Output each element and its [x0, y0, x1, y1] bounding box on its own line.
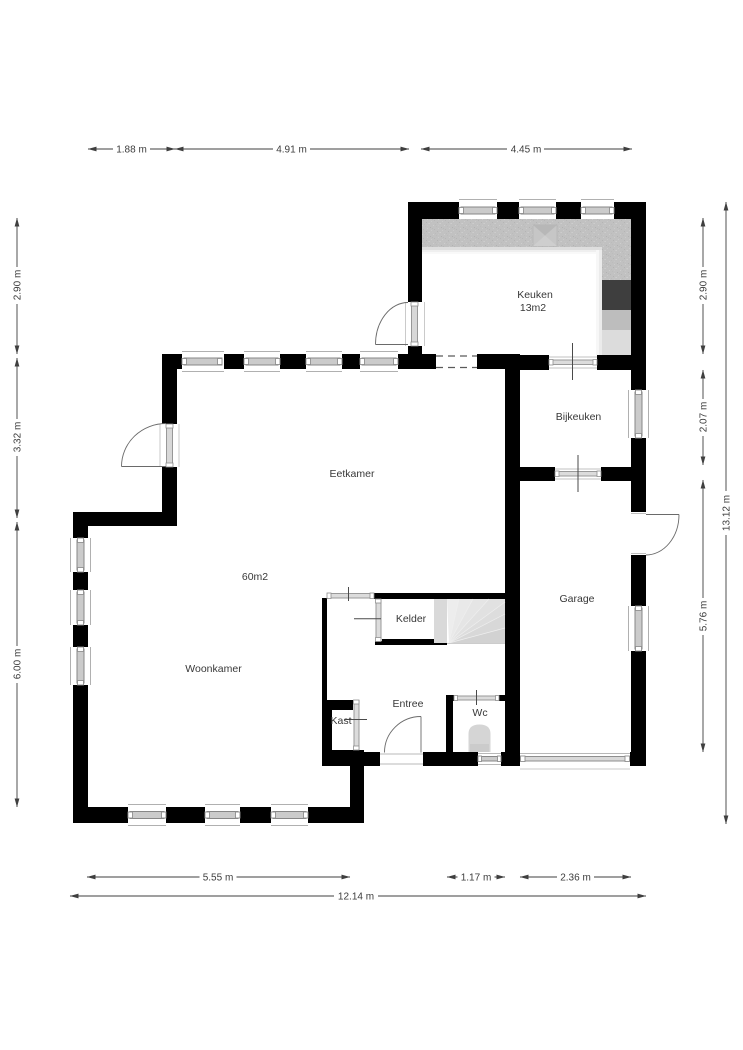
svg-text:13m2: 13m2	[520, 302, 546, 314]
svg-text:12.14 m: 12.14 m	[338, 892, 374, 903]
svg-text:Wc: Wc	[472, 707, 487, 719]
svg-text:6.00 m: 6.00 m	[13, 649, 24, 680]
svg-text:Kelder: Kelder	[396, 613, 427, 625]
svg-text:Entree: Entree	[393, 698, 424, 710]
svg-text:4.91 m: 4.91 m	[276, 145, 307, 156]
svg-text:3.32 m: 3.32 m	[13, 422, 24, 453]
svg-text:13.12 m: 13.12 m	[722, 495, 733, 531]
svg-text:Bijkeuken: Bijkeuken	[556, 411, 602, 423]
svg-text:60m2: 60m2	[242, 571, 268, 583]
svg-text:Woonkamer: Woonkamer	[185, 663, 242, 675]
svg-text:2.90 m: 2.90 m	[699, 270, 710, 301]
svg-text:5.55 m: 5.55 m	[203, 873, 234, 884]
svg-text:2.36 m: 2.36 m	[560, 873, 591, 884]
svg-text:5.76 m: 5.76 m	[699, 601, 710, 632]
svg-text:4.45 m: 4.45 m	[511, 145, 542, 156]
svg-text:Garage: Garage	[559, 593, 594, 605]
svg-text:1.17 m: 1.17 m	[461, 873, 492, 884]
svg-text:Eetkamer: Eetkamer	[330, 468, 375, 480]
svg-text:2.90 m: 2.90 m	[13, 270, 24, 301]
svg-text:Keuken: Keuken	[517, 289, 553, 301]
svg-text:2.07 m: 2.07 m	[699, 402, 710, 433]
svg-text:1.88 m: 1.88 m	[116, 145, 147, 156]
svg-text:Kast: Kast	[330, 715, 351, 727]
